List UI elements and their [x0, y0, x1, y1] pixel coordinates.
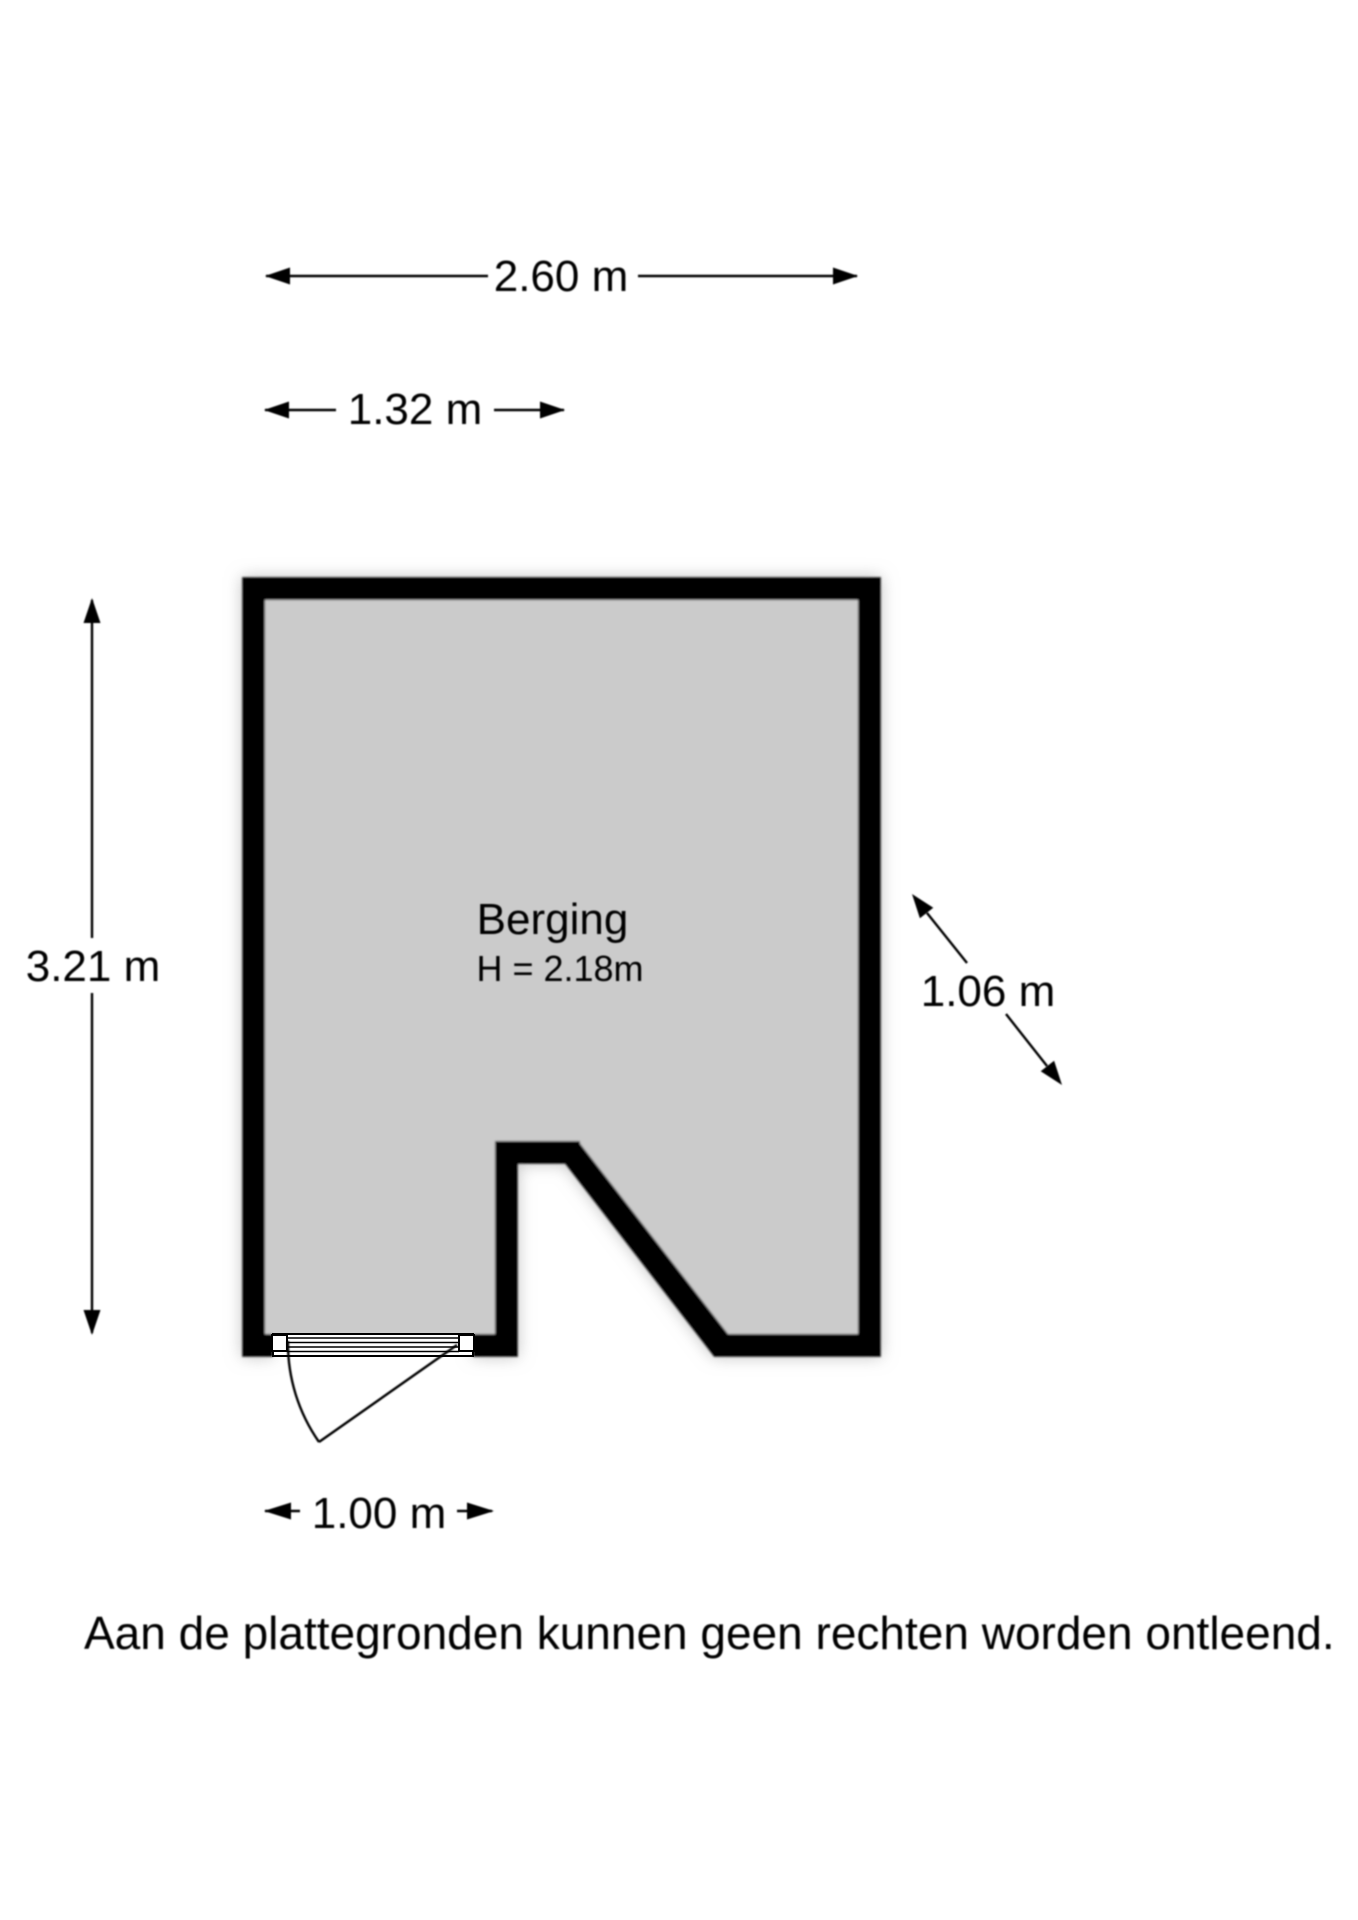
svg-text:3.21 m: 3.21 m [26, 942, 161, 991]
svg-text:1.32 m: 1.32 m [348, 385, 483, 434]
svg-text:1.00 m: 1.00 m [312, 1489, 447, 1538]
svg-text:Aan de plattegronden kunnen ge: Aan de plattegronden kunnen geen rechten… [84, 1607, 1335, 1659]
svg-text:1.06 m: 1.06 m [921, 967, 1056, 1016]
svg-text:Berging: Berging [477, 895, 629, 944]
svg-text:H = 2.18m: H = 2.18m [476, 948, 643, 989]
svg-text:2.60 m: 2.60 m [494, 252, 629, 301]
